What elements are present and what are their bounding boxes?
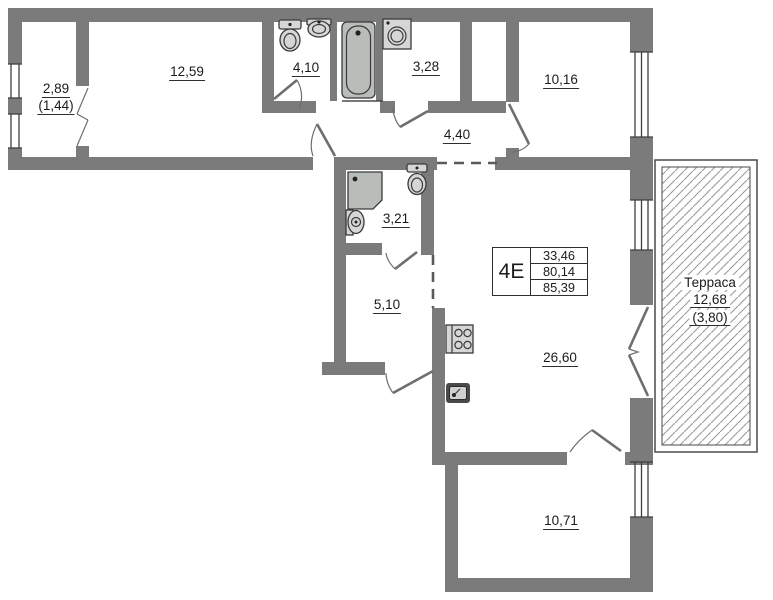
zone-boundary-dashed (433, 163, 497, 308)
washing-machine-icon (383, 19, 411, 49)
floor-plan: 2,89 (1,44) 12,59 4,10 3,28 10,16 4,40 3… (0, 0, 773, 600)
bathroom-3-21-area-label: 3,21 (382, 211, 410, 227)
balcony-area-label: 2,89 (42, 81, 70, 97)
door-room-3-28 (393, 107, 428, 127)
terrace-area-reduced-label: (3,80) (689, 310, 730, 326)
living-26-60-area-label: 26,60 (542, 350, 578, 366)
room-10-71-area-label: 10,71 (543, 513, 579, 529)
balcony-door-icon (77, 88, 88, 146)
terrace-french-door-icon (629, 307, 648, 396)
bathroom-4-10-area-label: 4,10 (292, 60, 320, 76)
room-10-16-area-label: 10,16 (543, 72, 579, 88)
sink-icon (307, 19, 331, 37)
apartment-areas: 33,46 80,14 85,39 (531, 248, 587, 295)
window-icon-room-10-71 (630, 462, 653, 517)
window-icon-room-10-16 (630, 52, 653, 137)
door-bath-3-21 (386, 252, 417, 269)
toilet-icon-2 (407, 164, 427, 195)
terrace-name-label: Терраса (681, 275, 739, 291)
total-area-value: 85,39 (531, 280, 587, 295)
apartment-info-table: 4Е 33,46 80,14 85,39 (492, 247, 588, 296)
hallway-4-40-area-label: 4,40 (443, 127, 471, 143)
door-room-10-71 (570, 430, 621, 452)
window-icon-living (630, 200, 653, 250)
bathtub-icon (342, 22, 375, 98)
hallway-5-10-area-label: 5,10 (373, 297, 401, 313)
door-room-10-16 (509, 104, 529, 152)
shower-cabin-icon (348, 172, 382, 209)
walls (8, 8, 653, 592)
living-area-value: 33,46 (531, 248, 587, 264)
window-icon-balcony-1 (8, 64, 22, 98)
area-value: 80,14 (531, 264, 587, 280)
room-12-59-area-label: 12,59 (169, 64, 205, 80)
door-strip-entry (311, 124, 335, 156)
door-hall-5-10 (386, 371, 433, 393)
toilet-icon (279, 20, 301, 51)
balcony-area-reduced-label: (1,44) (37, 98, 74, 114)
kitchen-sink-icon (446, 383, 470, 403)
sink-icon-2 (346, 210, 364, 235)
window-icon-balcony-2 (8, 114, 22, 148)
room-3-28-area-label: 3,28 (412, 59, 440, 75)
stove-icon (446, 325, 473, 353)
terrace-area-label: 12,68 (690, 292, 730, 308)
apartment-type-label: 4Е (493, 248, 531, 295)
